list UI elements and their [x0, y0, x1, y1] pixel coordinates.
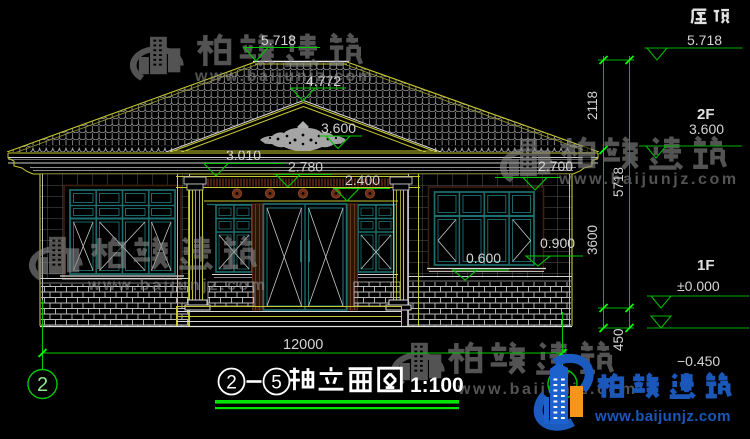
svg-text:3.010: 3.010: [226, 147, 261, 163]
svg-text:3.600: 3.600: [689, 121, 724, 137]
svg-text:3600: 3600: [585, 225, 600, 255]
svg-text:12000: 12000: [283, 337, 323, 353]
svg-text:0.900: 0.900: [540, 235, 575, 251]
svg-text:www.baijunjz.com: www.baijunjz.com: [194, 68, 375, 85]
svg-text:1F: 1F: [697, 257, 715, 274]
svg-text:5.718: 5.718: [261, 32, 296, 48]
svg-text:4.772: 4.772: [306, 73, 341, 89]
svg-text:0.600: 0.600: [466, 250, 501, 266]
svg-text:2.780: 2.780: [288, 159, 323, 175]
svg-text:2: 2: [37, 374, 48, 396]
svg-text:2.700: 2.700: [538, 158, 573, 174]
svg-text:5.718: 5.718: [687, 32, 722, 48]
svg-text:±0.000: ±0.000: [677, 278, 720, 294]
svg-text:2118: 2118: [585, 91, 600, 120]
svg-text:−0.450: −0.450: [677, 353, 720, 369]
svg-text:www.baijunjz.com: www.baijunjz.com: [594, 408, 731, 425]
svg-text:5: 5: [271, 373, 282, 394]
svg-text:www.baijunjz.com: www.baijunjz.com: [87, 277, 268, 294]
svg-text:450: 450: [611, 328, 626, 351]
svg-text:2: 2: [226, 373, 237, 394]
svg-text:2.400: 2.400: [345, 172, 380, 188]
svg-text:5718: 5718: [611, 167, 626, 197]
svg-text:3.600: 3.600: [321, 120, 356, 136]
svg-text:www.baijunjz.com: www.baijunjz.com: [558, 171, 739, 188]
svg-text:1:100: 1:100: [410, 374, 464, 397]
